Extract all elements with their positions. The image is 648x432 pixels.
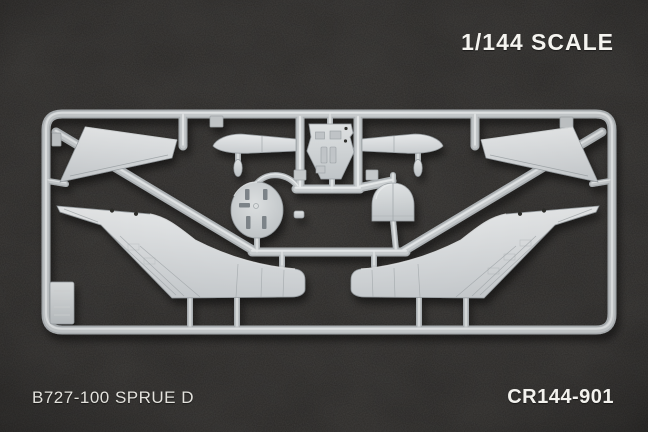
sprue-name-label: B727-100 SPRUE D bbox=[32, 388, 194, 408]
scale-label: 1/144 SCALE bbox=[461, 29, 614, 56]
product-code-label: CR144-901 bbox=[507, 386, 614, 409]
photo-model-sprue: 1/144 SCALE B727-100 SPRUE D CR144-901 bbox=[0, 0, 648, 432]
photo-vignette bbox=[0, 0, 648, 432]
sprue-photo-canvas bbox=[0, 0, 648, 432]
